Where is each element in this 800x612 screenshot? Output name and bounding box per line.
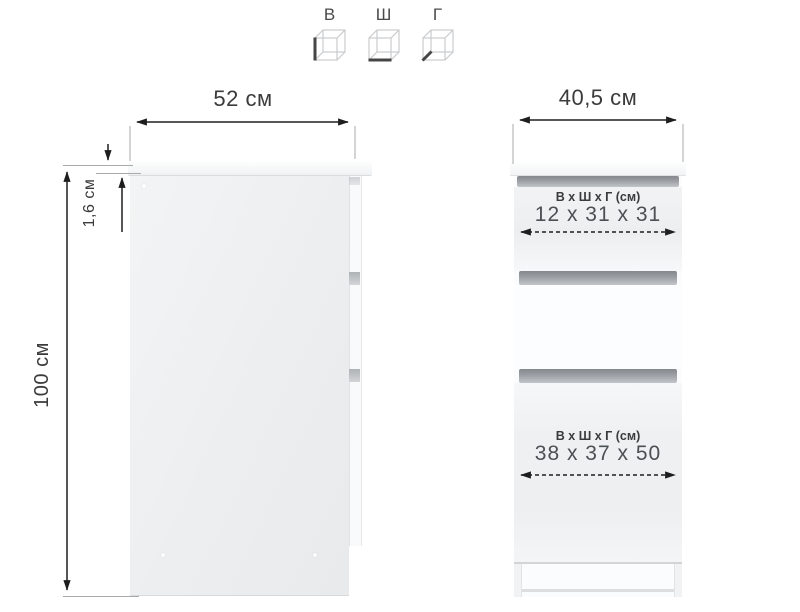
front-view-width-label: 40,5 см [513, 85, 683, 111]
side-view-top-panel [128, 162, 372, 176]
side-view-drawer-gap-1 [349, 177, 360, 185]
cube-height-icon [312, 27, 348, 63]
dimension-legend: В Ш Г [311, 5, 456, 63]
bottom-drawer-dims-header: В х Ш х Г (см) [514, 429, 682, 443]
legend-label-depth: Г [419, 5, 456, 25]
plinth-bottom-rail [522, 589, 674, 592]
bottom-drawer-dims-value: 38 х 37 х 50 [514, 442, 682, 466]
side-view-width-label: 52 см [130, 86, 356, 112]
plinth-foot-left [514, 564, 522, 597]
furniture-dimensions-diagram: В Ш Г [0, 0, 800, 612]
front-view-plinth [514, 562, 682, 597]
cube-width-icon [366, 27, 402, 63]
legend-label-height: В [311, 5, 348, 25]
side-view-drawer-gap-2 [349, 272, 360, 285]
legend-item-height: В [311, 5, 348, 63]
plinth-foot-right [674, 564, 682, 597]
legend-item-width: Ш [365, 5, 402, 63]
side-view-side-panel [130, 176, 349, 596]
front-view-drawer-gap-1 [517, 176, 679, 187]
top-drawer-dims-header: В х Ш х Г (см) [514, 190, 682, 204]
side-view-drawer-edge-strip [349, 176, 362, 546]
top-panel-thickness-label: 1,6 см [81, 169, 99, 237]
front-view-drawer-2 [514, 285, 682, 369]
side-view-drawer-gap-3 [349, 369, 360, 382]
cube-depth-icon [420, 27, 456, 63]
front-view-drawer-3 [514, 383, 682, 562]
front-view-top-panel [510, 162, 686, 176]
side-view-height-label: 100 см [31, 329, 53, 421]
front-view-drawer-gap-2 [519, 271, 677, 285]
top-drawer-dims-value: 12 х 31 х 31 [514, 203, 682, 227]
legend-item-depth: Г [419, 5, 456, 63]
side-panel-hole-dot [142, 184, 146, 188]
side-panel-hole-dot [313, 553, 317, 557]
side-panel-hole-dot [161, 553, 165, 557]
front-view-drawer-gap-3 [519, 369, 677, 383]
legend-label-width: Ш [365, 5, 402, 25]
